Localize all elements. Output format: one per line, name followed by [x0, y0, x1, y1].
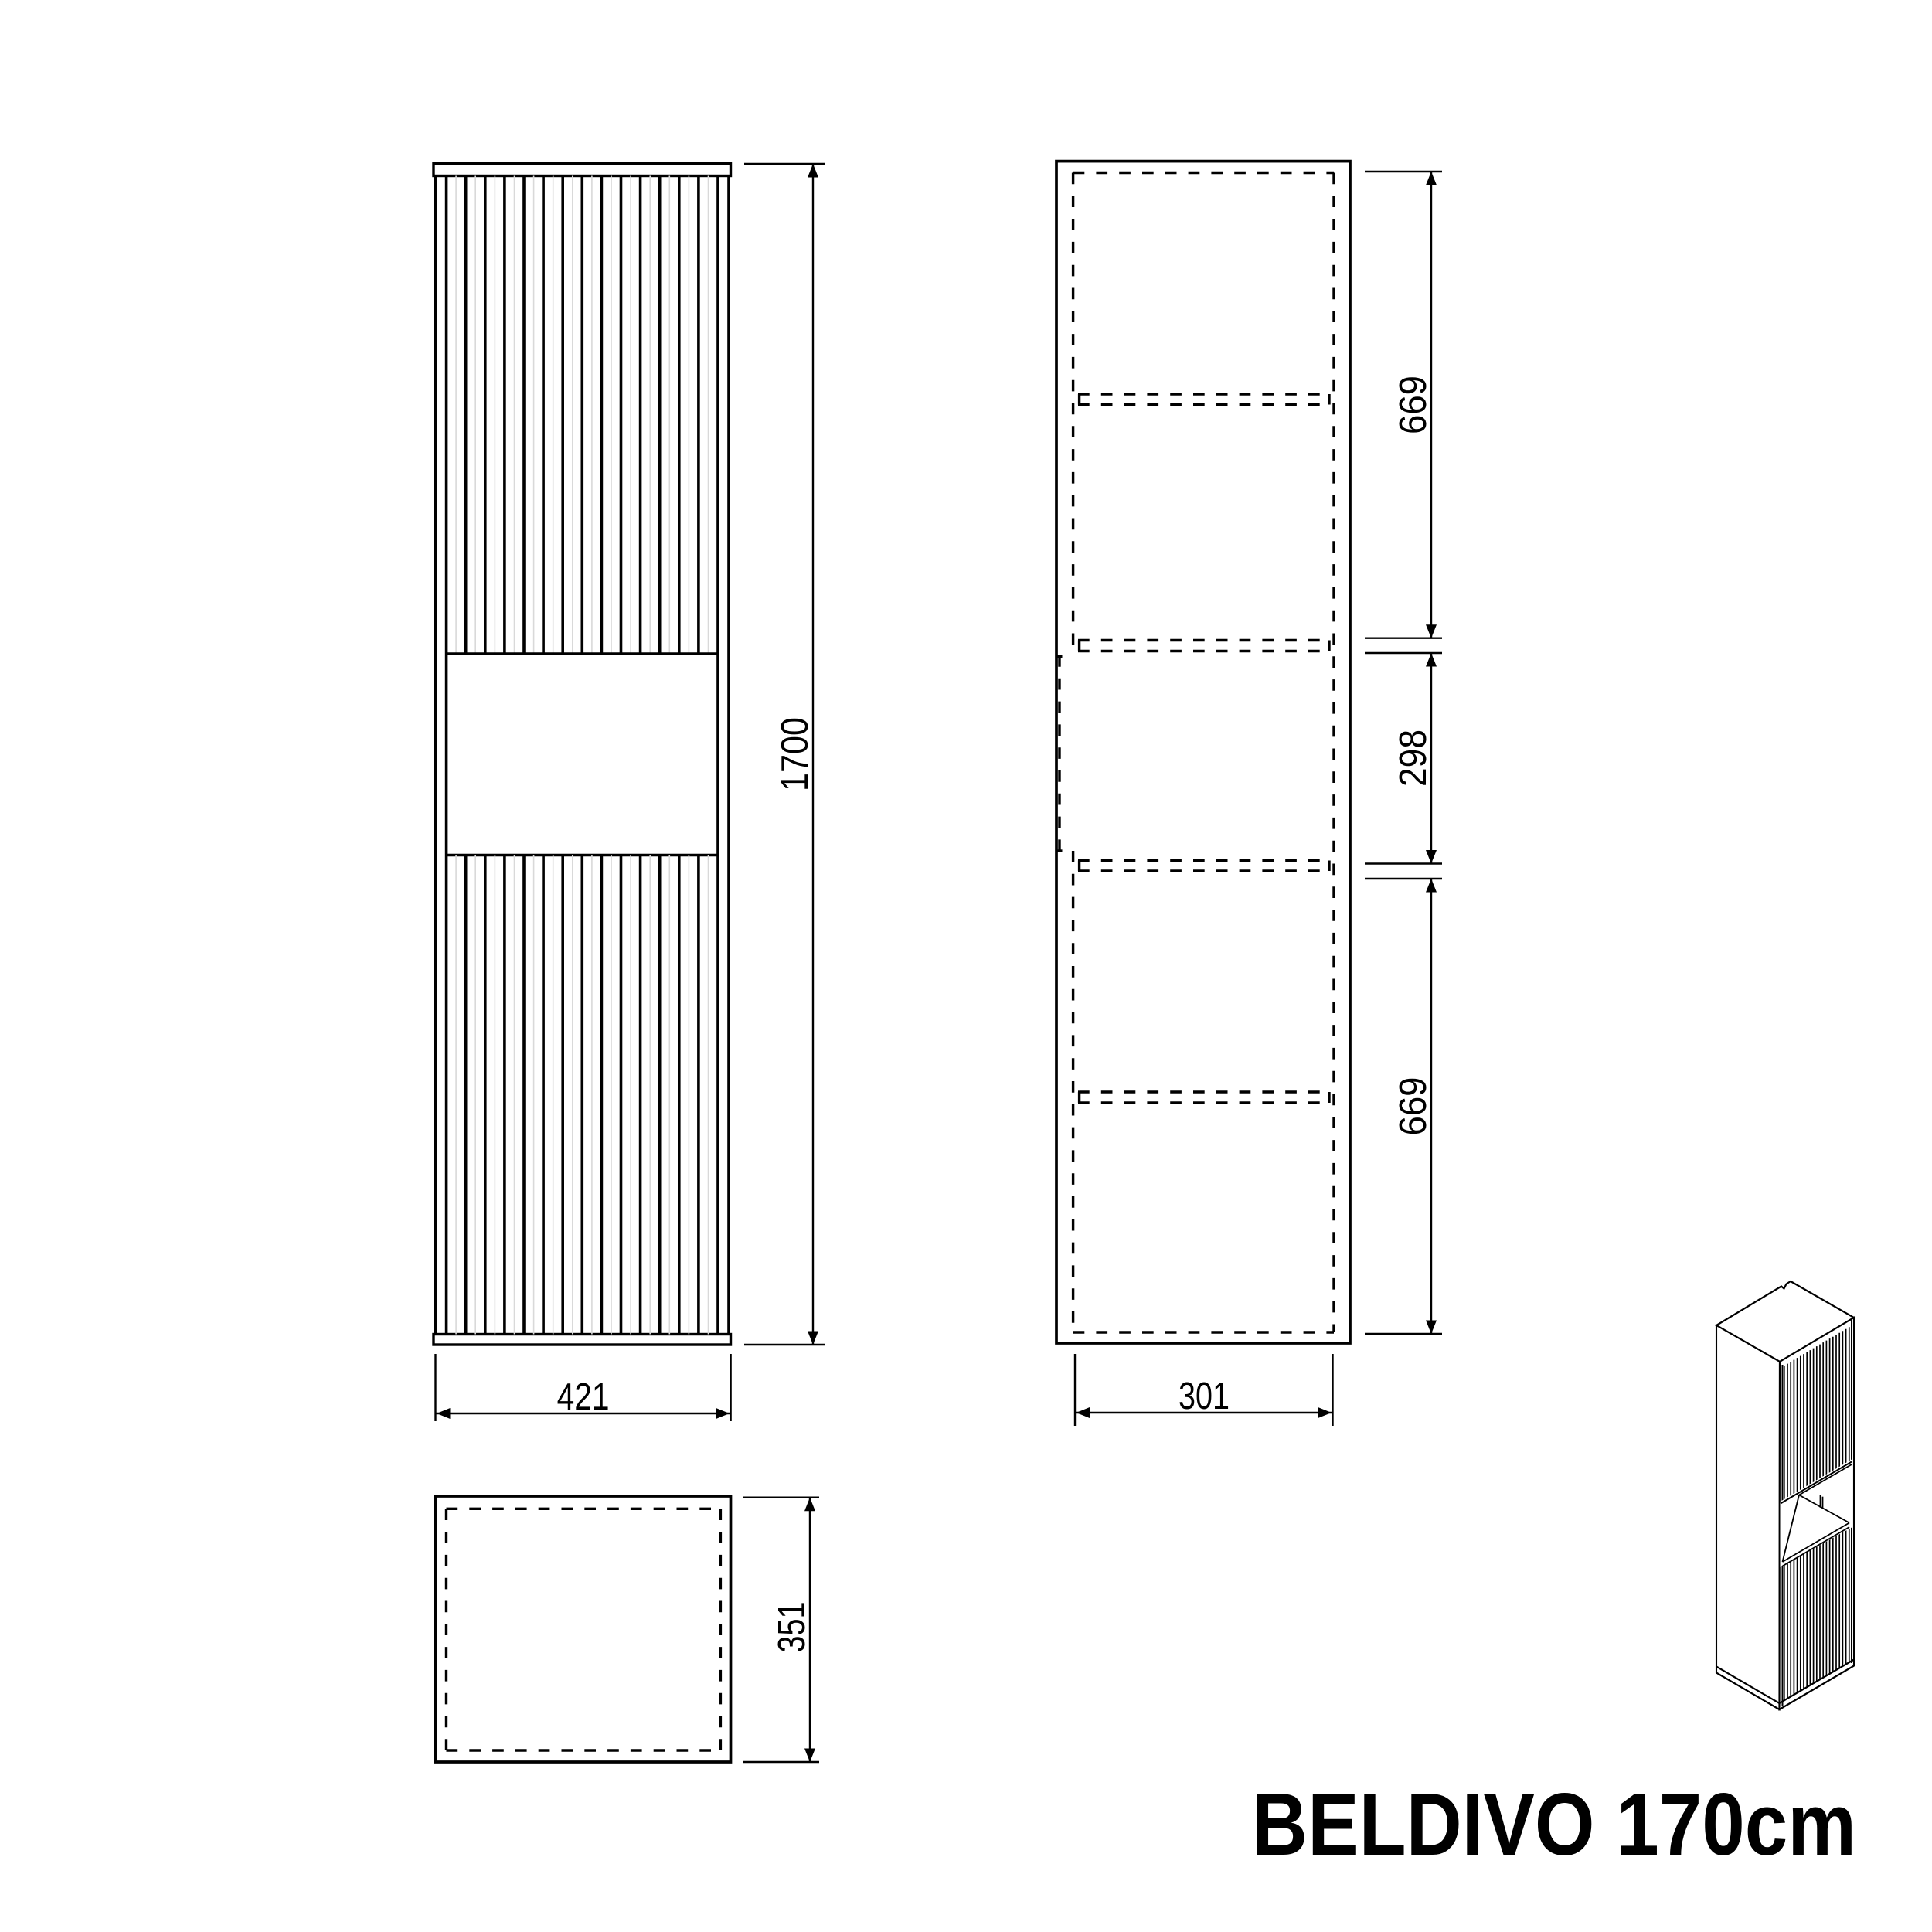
svg-text:298: 298: [1393, 730, 1434, 787]
svg-text:669: 669: [1393, 376, 1434, 434]
svg-text:301: 301: [1179, 1376, 1230, 1417]
svg-text:351: 351: [771, 1602, 813, 1653]
svg-text:1700: 1700: [774, 717, 816, 791]
svg-text:669: 669: [1393, 1077, 1434, 1136]
svg-text:421: 421: [557, 1376, 610, 1418]
svg-text:BELDIVO 170cm: BELDIVO 170cm: [1252, 1776, 1856, 1874]
